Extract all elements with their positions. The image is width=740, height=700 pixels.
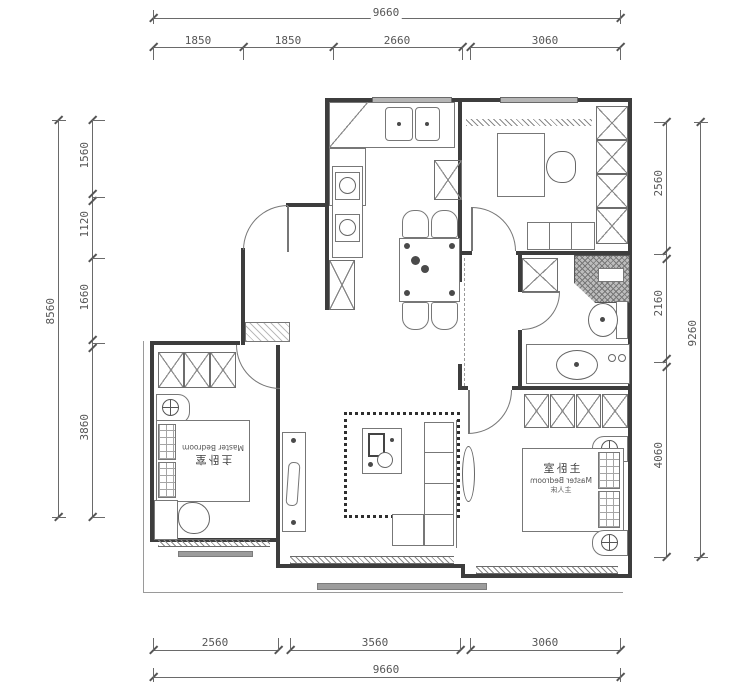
wardrobe-cell xyxy=(596,208,628,244)
dim-ext xyxy=(694,122,708,123)
bedroom-chair xyxy=(178,502,210,534)
building-outline xyxy=(143,592,623,593)
toilet-drain xyxy=(600,317,605,322)
dim-ext xyxy=(654,254,667,255)
wardrobe-cell xyxy=(596,106,628,140)
kitchen-tall-cabinet xyxy=(329,260,355,310)
stove-burner xyxy=(339,219,356,236)
dim-ext xyxy=(694,557,708,558)
dim-ext xyxy=(52,120,66,121)
dim-ext xyxy=(92,517,105,518)
room-name-en: Master Bedroom xyxy=(178,442,248,452)
shoe-cabinet xyxy=(245,322,290,342)
room-name-cn: 主卧室 xyxy=(525,462,597,476)
dim-ext xyxy=(278,638,279,650)
pillow xyxy=(598,491,620,528)
balcony-sill-living xyxy=(317,583,487,590)
dim-line-left-segments xyxy=(92,120,93,517)
sofa xyxy=(424,422,454,546)
sink-drain xyxy=(397,122,401,126)
dim-label: 2160 xyxy=(653,288,665,319)
dim-ext xyxy=(333,47,334,60)
dim-ext xyxy=(153,10,154,24)
faucet xyxy=(618,354,626,362)
dim-ext xyxy=(92,197,105,198)
dim-line-bottom-segments xyxy=(153,650,278,651)
desk xyxy=(497,133,545,197)
wall-top-bedroom-left xyxy=(150,341,240,345)
dim-ext xyxy=(52,517,66,518)
dining-chair xyxy=(402,302,429,330)
dim-label: 4060 xyxy=(653,440,665,471)
dining-chair xyxy=(431,302,458,330)
dining-chair xyxy=(431,210,458,238)
window-bedroom-left xyxy=(158,539,270,547)
sofa-chaise xyxy=(392,514,424,546)
dim-label: 1560 xyxy=(79,140,91,171)
dim-label: 2560 xyxy=(200,636,231,649)
lamp-icon xyxy=(601,534,618,551)
bedroom-left-door-arc xyxy=(236,345,280,389)
table-corner xyxy=(449,243,455,249)
wardrobe-cell xyxy=(184,352,210,388)
dim-label-left-overall: 8560 xyxy=(45,296,57,327)
dining-chair xyxy=(402,210,429,238)
dim-ext xyxy=(153,668,154,682)
dim-line-top-segments xyxy=(470,47,620,48)
dim-ext xyxy=(92,258,105,259)
dim-ext xyxy=(620,638,621,650)
basin-drain xyxy=(574,362,579,367)
dim-ext xyxy=(654,557,667,558)
dim-ext xyxy=(654,122,667,123)
wardrobe-cell xyxy=(524,394,549,428)
window-living xyxy=(290,556,454,564)
wardrobe-cell xyxy=(596,140,628,174)
dim-label: 1660 xyxy=(79,282,91,313)
room-label-bedroom-right: 主卧室 Master Bedroom 主人床 xyxy=(525,462,597,495)
wall-master-top xyxy=(512,386,632,390)
dim-ext xyxy=(470,638,471,650)
low-cabinet xyxy=(527,222,595,250)
faucet xyxy=(608,354,616,362)
wardrobe-cell xyxy=(158,352,184,388)
dim-label-top-overall: 9660 xyxy=(371,6,402,19)
wall-bottom-master xyxy=(461,574,632,578)
dim-label: 3560 xyxy=(360,636,391,649)
table-decor xyxy=(411,256,420,265)
wardrobe-cell xyxy=(596,174,628,208)
dim-label: 2560 xyxy=(653,168,665,199)
wall-entry-top xyxy=(286,203,329,207)
dim-ext xyxy=(243,47,244,60)
master-door-arc xyxy=(468,390,512,434)
sink-drain xyxy=(425,122,429,126)
table-corner xyxy=(404,243,410,249)
area-divider-dashed xyxy=(464,258,465,386)
side-table xyxy=(154,500,178,540)
window-study xyxy=(500,97,578,103)
dim-label-right-overall: 9260 xyxy=(687,318,699,349)
dim-ext xyxy=(620,668,621,682)
room-label-bedroom-left: 主卧室 Master Bedroom xyxy=(178,442,248,466)
dim-label: 2660 xyxy=(382,34,413,47)
window-curtain-study xyxy=(466,119,592,126)
cup xyxy=(368,462,373,467)
tv-stand-detail xyxy=(291,520,296,525)
dim-line-right-segments xyxy=(666,122,667,557)
wall-bottom-living xyxy=(276,564,465,568)
sofa-back xyxy=(456,420,457,548)
pillow xyxy=(598,452,620,489)
wardrobe-cell xyxy=(602,394,628,428)
window-sill-bedroom-left xyxy=(178,551,253,557)
dim-ext xyxy=(462,47,463,60)
bath-door-arc xyxy=(522,292,560,330)
entry-door-arc xyxy=(243,205,288,250)
pillow xyxy=(158,424,176,460)
wardrobe-cell xyxy=(210,352,236,388)
dim-ext xyxy=(620,47,621,60)
dressing-mirror xyxy=(462,446,475,502)
dim-label: 3060 xyxy=(530,636,561,649)
dim-ext xyxy=(470,47,471,60)
study-door-arc xyxy=(472,207,516,251)
dim-label-bottom-overall: 9660 xyxy=(371,663,402,676)
dim-line-top-segments xyxy=(153,47,462,48)
dim-label: 1120 xyxy=(79,209,91,240)
dim-ext xyxy=(153,47,154,60)
stove-burner xyxy=(339,177,356,194)
fridge xyxy=(434,160,462,200)
tv-stand-detail xyxy=(291,438,296,443)
table-corner xyxy=(404,290,410,296)
wall-master-top xyxy=(458,386,468,390)
wardrobe-cell xyxy=(550,394,575,428)
dim-label: 3060 xyxy=(530,34,561,47)
dim-ext xyxy=(620,10,621,24)
wardrobe-cell xyxy=(576,394,601,428)
dim-line-bottom-segments xyxy=(470,650,620,651)
dim-label: 3860 xyxy=(79,412,91,443)
dim-ext xyxy=(92,343,105,344)
desk-chair xyxy=(546,151,576,183)
dim-ext xyxy=(92,120,105,121)
bed-label: 主人床 xyxy=(525,486,597,495)
cup xyxy=(390,438,394,442)
shower-valve xyxy=(598,268,624,282)
dim-line-bottom-segments xyxy=(290,650,460,651)
room-name-en: Master Bedroom xyxy=(525,476,597,486)
wall-bath-left xyxy=(518,330,522,390)
wall-study-bottom xyxy=(516,251,632,255)
dim-ext xyxy=(153,638,154,650)
floor-plan: 9660 1850 1850 2660 3060 2560 3560 3060 … xyxy=(0,0,740,700)
kettle xyxy=(377,452,393,468)
wall-right xyxy=(628,98,632,578)
dim-label: 1850 xyxy=(183,34,214,47)
building-outline xyxy=(143,341,144,593)
kitchen-corner-unit xyxy=(329,102,368,148)
dim-ext xyxy=(460,638,461,650)
dim-line-bottom-overall xyxy=(153,677,620,678)
dim-line-left-overall xyxy=(58,120,59,517)
lamp-icon xyxy=(162,399,179,416)
dim-ext xyxy=(290,638,291,650)
dim-ext xyxy=(654,362,667,363)
dim-label: 1850 xyxy=(273,34,304,47)
table-corner xyxy=(449,290,455,296)
dim-line-right-overall xyxy=(700,122,701,557)
washing-machine xyxy=(522,258,558,292)
room-name-cn: 主卧室 xyxy=(178,452,248,466)
window-master xyxy=(476,566,618,574)
pillow xyxy=(158,462,176,498)
table-decor xyxy=(421,265,429,273)
